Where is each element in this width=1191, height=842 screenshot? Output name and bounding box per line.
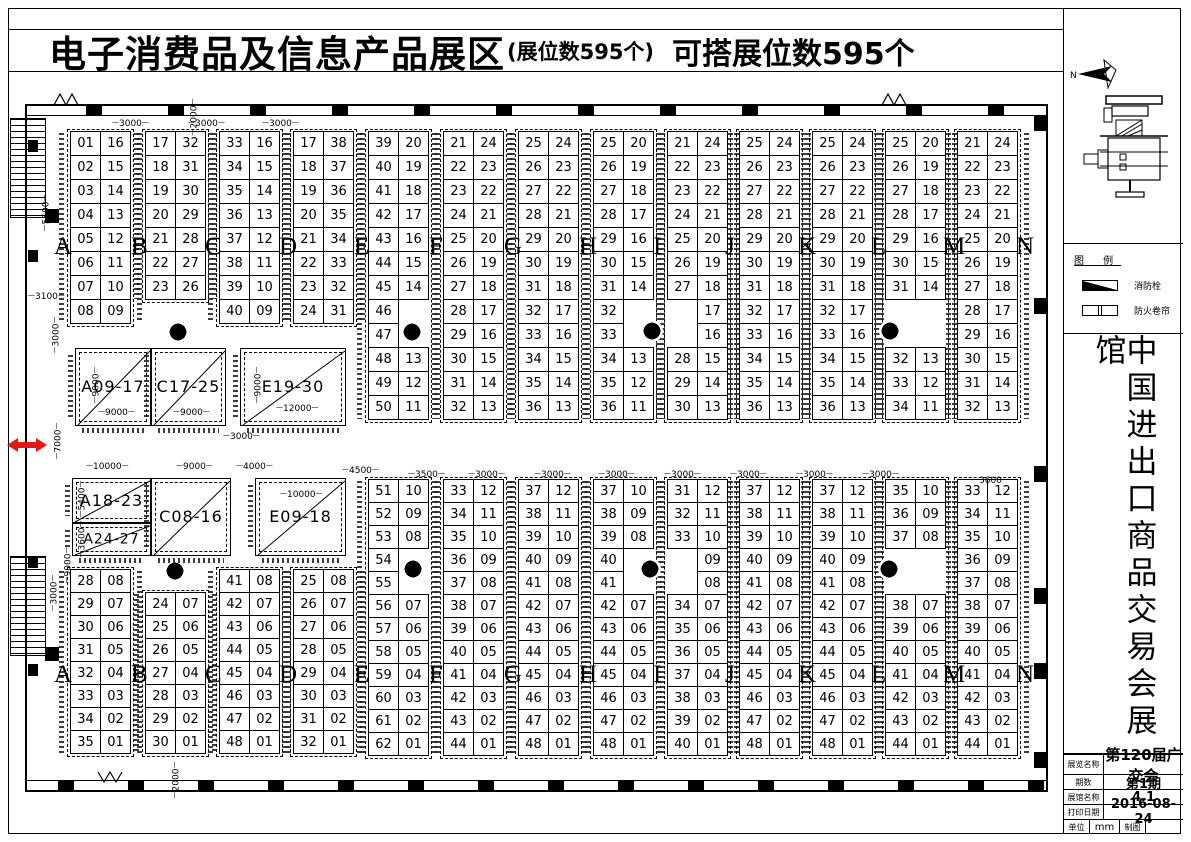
booth-row: 4401 (443, 733, 504, 756)
empty-cell (667, 323, 698, 348)
booth-cell: 04 (548, 663, 579, 687)
booth-cell: 28 (518, 203, 549, 228)
booth-row: 3114 (593, 276, 654, 300)
booth-row: 3611 (593, 396, 654, 420)
booth-row: 0512 (70, 228, 131, 252)
booth-row: 3807 (957, 595, 1018, 618)
booth-cell: 16 (548, 323, 579, 348)
booth-cell: 27 (145, 661, 176, 685)
booth-cell: 45 (368, 275, 399, 300)
wall-column (86, 105, 102, 116)
unit-label: 单位 (1064, 820, 1090, 834)
booth-cell: 31 (812, 275, 843, 300)
booth-cell: 20 (623, 131, 654, 156)
booth-cell: 18 (697, 275, 728, 300)
booth-block: 2124222323222421252026192718281729163015… (440, 129, 507, 423)
booth-row: 2407 (145, 593, 206, 616)
booth-cell: 34 (323, 227, 354, 252)
booth-cell: 26 (518, 155, 549, 180)
booth-cell: 04 (100, 661, 131, 685)
booth-row: 3902 (667, 710, 728, 733)
booth-row: 2907 (70, 593, 131, 616)
wall-column (824, 105, 840, 116)
booth-row: 2914 (667, 372, 728, 396)
dimension-label: 5500 (41, 195, 51, 232)
booth-cell: 31 (175, 155, 206, 180)
booth-cell: 23 (667, 179, 698, 204)
legend-item-fire-shutter: 防火卷帘 (1074, 304, 1173, 317)
booth-row: 3506 (667, 618, 728, 641)
booth-cell: 21 (697, 203, 728, 228)
booth-cell: 42 (219, 592, 250, 616)
legend: 图 例 消防栓 防火卷帘 (1064, 244, 1183, 334)
booth-cell: 22 (443, 155, 474, 180)
booth-row: 4912 (368, 372, 429, 396)
booth-row: 3407 (667, 595, 728, 618)
booth-cell: 48 (518, 732, 549, 756)
booth-cell: 26 (593, 155, 624, 180)
empty-cell (667, 548, 698, 572)
booth-cell: 29 (145, 707, 176, 731)
booth-cell: 19 (915, 155, 946, 180)
booth-cell: 08 (697, 571, 728, 595)
booth-row: 3613 (219, 204, 280, 228)
booth-cell: 07 (987, 594, 1018, 618)
wall-column (268, 781, 284, 792)
booth-cell: 39 (739, 525, 770, 549)
booth-row: 4504 (518, 664, 579, 687)
booth-row: 4306 (518, 618, 579, 641)
booth-row: 2124 (667, 132, 728, 156)
column-letter-bottom: F (429, 662, 443, 687)
booth-cell: 23 (473, 155, 504, 180)
booth-row: 1837 (293, 156, 354, 180)
column-letter-bottom: B (131, 662, 148, 687)
booth-group-label: C08-16 (152, 507, 230, 526)
booth-cell: 47 (812, 709, 843, 733)
booth-cell: 07 (70, 275, 101, 300)
booth-cell: 34 (667, 594, 698, 618)
booth-row: 2223 (443, 156, 504, 180)
dimension-label: 9000 (63, 547, 73, 584)
booth-cell: 35 (739, 371, 770, 396)
booth-cell: 23 (293, 275, 324, 300)
booth-row: 3803 (667, 687, 728, 710)
booth-row: 4009 (739, 549, 800, 572)
booth-row: 3013 (667, 396, 728, 420)
booth-row: 2920 (518, 228, 579, 252)
wall-column (28, 140, 38, 152)
booth-cell: 30 (175, 179, 206, 204)
booth-row: 17 (667, 300, 728, 324)
booth-cell: 21 (769, 203, 800, 228)
booth-cell: 39 (667, 709, 698, 733)
booth-row: 4005 (443, 641, 504, 664)
booth-block: 17381837193620352134223323322431 (290, 129, 357, 327)
booth-cell: 45 (518, 663, 549, 687)
booth-cell: 12 (473, 479, 504, 503)
booth-cell: 48 (368, 347, 399, 372)
booth-cell: 38 (593, 502, 624, 526)
booth-row: 4104 (957, 664, 1018, 687)
booth-row: 3811 (812, 503, 873, 526)
booth-cell: 06 (473, 617, 504, 641)
dimension-label: 4000 (236, 462, 273, 472)
booth-row: 3910 (739, 526, 800, 549)
booth-row: 2920 (812, 228, 873, 252)
booth-row: 3015 (443, 348, 504, 372)
booth-cell: 35 (667, 617, 698, 641)
booth-cell: 35 (812, 371, 843, 396)
booth-cell: 18 (398, 179, 429, 204)
wall-column (828, 781, 844, 792)
booth-row: 2326 (145, 276, 206, 300)
wall-column (1034, 466, 1046, 482)
booth-row: 2520 (443, 228, 504, 252)
column-letter-top: A (54, 234, 72, 259)
booth-cell: 19 (473, 251, 504, 276)
booth-cell: 40 (368, 155, 399, 180)
wall-column (28, 250, 38, 262)
booth-cell: 18 (987, 275, 1018, 300)
booth-cell: 27 (739, 179, 770, 204)
booth-row: 4603 (593, 687, 654, 710)
booth-row: 4306 (812, 618, 873, 641)
booth-row: 5805 (368, 641, 429, 664)
booth-row: 5308 (368, 526, 429, 549)
booth-cell: 28 (443, 299, 474, 324)
booth-cell: 27 (812, 179, 843, 204)
wall-column (742, 105, 758, 116)
booth-row: 2803 (145, 685, 206, 708)
booth-cell: 28 (593, 203, 624, 228)
booth-row: 2332 (293, 276, 354, 300)
booth-cell: 06 (697, 617, 728, 641)
booth-row: 2817 (443, 300, 504, 324)
booth-cell: 14 (915, 275, 946, 300)
booth-cell: 16 (473, 323, 504, 348)
booth-cell: 25 (667, 227, 698, 252)
booth-row: 3019 (812, 252, 873, 276)
booth-cell: 02 (323, 707, 354, 731)
booth-cell: 44 (739, 640, 770, 664)
booth-cell: 07 (249, 592, 280, 616)
booth-cell: 32 (812, 299, 843, 324)
booth-cell: 15 (548, 347, 579, 372)
booth-row: 3217 (518, 300, 579, 324)
booth-row: 3609 (885, 503, 946, 526)
column-letter-top: D (279, 234, 297, 259)
booth-row: 2520 (593, 132, 654, 156)
booth-row: 2916 (443, 324, 504, 348)
booth-cell: 06 (548, 617, 579, 641)
dimension-label: 3000 (862, 470, 899, 480)
booth-cell: 41 (812, 571, 843, 595)
booth-cell: 26 (812, 155, 843, 180)
booth-group-label: C17-25 (152, 377, 225, 396)
booth-cell: 08 (769, 571, 800, 595)
booth-row: 4401 (885, 733, 946, 756)
booth-cell: 48 (219, 730, 250, 754)
booth-row: 2623 (739, 156, 800, 180)
booth-cell: 47 (739, 709, 770, 733)
booth-cell: 43 (593, 617, 624, 641)
booth-cell: 06 (842, 617, 873, 641)
column-letter-bottom: L (871, 662, 886, 687)
booth-cell: 26 (739, 155, 770, 180)
booth-row: 4005 (957, 641, 1018, 664)
booth-row: 3201 (293, 731, 354, 754)
booth-cell: 47 (593, 709, 624, 733)
booth-cell: 42 (593, 594, 624, 618)
booth-cell: 04 (249, 661, 280, 685)
wall-column (168, 105, 184, 116)
booth-cell: 40 (812, 548, 843, 572)
booth-row: 3217 (739, 300, 800, 324)
booth-row: 3910 (812, 526, 873, 549)
booth-row: 3001 (145, 731, 206, 754)
booth-cell: 04 (70, 203, 101, 228)
booth-row: 3807 (885, 595, 946, 618)
booth-row: 4405 (518, 641, 579, 664)
booth-row: 4108 (812, 572, 873, 595)
booth-row: 5110 (368, 480, 429, 503)
booth-cell: 27 (175, 251, 206, 276)
booth-cell: 21 (293, 227, 324, 252)
booth-cell: 10 (769, 525, 800, 549)
booth-cell: 57 (368, 617, 399, 641)
booth-row: 2619 (443, 252, 504, 276)
booth-cell: 01 (100, 730, 131, 754)
booth-cell: 22 (548, 179, 579, 204)
booth-block: 3710380939084041420743064405450446034702… (590, 477, 657, 759)
booth-row: 4009 (518, 549, 579, 572)
booth-row: 0413 (70, 204, 131, 228)
booth-cell: 29 (175, 203, 206, 228)
booth-cell: 19 (842, 251, 873, 276)
booth-cell: 07 (915, 594, 946, 618)
booth-row: 3712 (518, 480, 579, 503)
legend-item-fire-hydrant: 消防栓 (1074, 279, 1173, 292)
booth-cell: 37 (518, 479, 549, 503)
booth-cell: 31 (739, 275, 770, 300)
booth-cell: 10 (100, 275, 131, 300)
booth-cell: 33 (70, 684, 101, 708)
dimension-label: 3000 (534, 470, 571, 480)
booth-row: 4019 (368, 156, 429, 180)
booth-row: 2718 (593, 180, 654, 204)
booth-cell: 29 (70, 592, 101, 616)
booth-row: 2605 (145, 639, 206, 662)
booth-cell: 03 (842, 686, 873, 710)
booth-cell: 13 (398, 347, 429, 372)
booth-cell: 20 (473, 227, 504, 252)
dimension-label: 3000 (664, 470, 701, 480)
booth-cell: 15 (473, 347, 504, 372)
booth-cell: 09 (697, 548, 728, 572)
booth-cell: 38 (443, 594, 474, 618)
booth-cell: 41 (368, 179, 399, 204)
booth-cell: 24 (957, 203, 988, 228)
booth-cell: 25 (443, 227, 474, 252)
booth-cell: 30 (443, 347, 474, 372)
booth-row: 2904 (293, 662, 354, 685)
booth-row: 2128 (145, 228, 206, 252)
booth-cell: 22 (145, 251, 176, 276)
booth-cell: 26 (667, 251, 698, 276)
booth-row: 4702 (739, 710, 800, 733)
booth-cell: 13 (915, 347, 946, 372)
booth-cell: 28 (739, 203, 770, 228)
booth-block: 3712381139104009410842074306440545044603… (809, 477, 876, 759)
booth-row: 2916 (593, 228, 654, 252)
column-letter-top: K (798, 234, 816, 259)
booth-cell: 43 (219, 615, 250, 639)
booth-row: 4405 (593, 641, 654, 664)
column-letter-bottom: M (943, 662, 965, 687)
booth-cell: 24 (548, 131, 579, 156)
north-arrow-icon: N (1064, 8, 1182, 242)
booth-cell: 40 (885, 640, 916, 664)
booth-cell: 32 (323, 275, 354, 300)
venue-name: 中国进出口商品交易会展馆 (1093, 334, 1155, 753)
booth-cell: 31 (885, 275, 916, 300)
booth-cell: 20 (915, 131, 946, 156)
booth-cell: 24 (667, 203, 698, 228)
booth-row: 3415 (219, 156, 280, 180)
booth-cell: 37 (219, 227, 250, 252)
booth-cell: 36 (812, 395, 843, 420)
booth-cell: 09 (987, 548, 1018, 572)
booth-cell: 06 (623, 617, 654, 641)
dimension-label: 3000 (262, 119, 299, 129)
booth-row: 3609 (957, 549, 1018, 572)
booth-cell: 01 (70, 131, 101, 156)
booth-cell: 06 (175, 615, 206, 639)
wall-column (250, 105, 266, 116)
booth-cell: 05 (323, 638, 354, 662)
booth-row: 3512 (593, 372, 654, 396)
booth-cell: 42 (957, 686, 988, 710)
fire-hydrant-icon (1082, 280, 1118, 291)
booth-cell: 39 (812, 525, 843, 549)
booth-cell: 19 (145, 179, 176, 204)
booth-row: 3015 (593, 252, 654, 276)
booth-cell: 37 (957, 571, 988, 595)
info-label: 展览名称 (1064, 755, 1104, 774)
booth-cell: 41 (219, 569, 250, 593)
booth-cell: 02 (249, 707, 280, 731)
booth-row: 2808 (70, 570, 131, 593)
booth-row: 2322 (957, 180, 1018, 204)
wall-column (1034, 663, 1046, 679)
booth-row: 3019 (518, 252, 579, 276)
booth-cell: 41 (739, 571, 770, 595)
booth-row: 2722 (812, 180, 873, 204)
booth-row: 3213 (885, 348, 946, 372)
wall-column (988, 105, 1004, 116)
booth-block: 2124222323222421252026192718281729163015… (954, 129, 1021, 423)
booth-cell: 32 (518, 299, 549, 324)
column-letter-bottom: E (354, 662, 369, 687)
booth-cell: 13 (100, 203, 131, 228)
booth-cell: 36 (667, 640, 698, 664)
booth-row: 2902 (145, 708, 206, 731)
booth-cell: 14 (548, 371, 579, 396)
booth-cell: 36 (518, 395, 549, 420)
booth-cell: 29 (885, 227, 916, 252)
booth-cell: 27 (957, 275, 988, 300)
booth-cell: 43 (518, 617, 549, 641)
booth-cell: 15 (249, 155, 280, 180)
booth-cell: 27 (885, 179, 916, 204)
booth-cell: 27 (293, 615, 324, 639)
booth-row: 3316 (739, 324, 800, 348)
booth-cell: 28 (70, 569, 101, 593)
booth-row: 4104 (885, 664, 946, 687)
booth-row: 2821 (739, 204, 800, 228)
booth-cell: 09 (473, 548, 504, 572)
booth-cell: 10 (987, 525, 1018, 549)
booth-cell: 30 (957, 347, 988, 372)
booth-cell: 44 (812, 640, 843, 664)
booth-cell: 34 (593, 347, 624, 372)
column-letter-bottom: H (579, 662, 597, 687)
booth-cell: 05 (915, 640, 946, 664)
booth-cell: 27 (667, 275, 698, 300)
pillar (167, 321, 189, 343)
booth-cell: 44 (518, 640, 549, 664)
booth-cell: 46 (219, 684, 250, 708)
booth-cell: 09 (842, 548, 873, 572)
booth-cell: 39 (885, 617, 916, 641)
booth-cell: 59 (368, 663, 399, 687)
booth-cell: 08 (548, 571, 579, 595)
booth-cell: 36 (885, 502, 916, 526)
hall-floor-plan: 0116021503140413051206110710080917321831… (0, 0, 1063, 842)
booth-row: 0215 (70, 156, 131, 180)
booth-cell: 20 (293, 203, 324, 228)
booth-cell: 61 (368, 709, 399, 733)
booth-cell: 24 (443, 203, 474, 228)
booth-cell: 12 (249, 227, 280, 252)
booth-cell: 01 (842, 732, 873, 756)
booth-row: 2619 (667, 252, 728, 276)
booth-cell: 33 (443, 479, 474, 503)
booth-cell: 28 (293, 638, 324, 662)
column-letter-top: F (429, 234, 443, 259)
booth-row: 3105 (70, 639, 131, 662)
column-letter-bottom: I (653, 662, 661, 687)
booth-row: 4207 (739, 595, 800, 618)
booth-cell: 38 (739, 502, 770, 526)
booth-cell: 21 (548, 203, 579, 228)
booth-row: 2227 (145, 252, 206, 276)
column-letter-bottom: D (279, 662, 297, 687)
booth-cell: 38 (219, 251, 250, 276)
booth-row: 4504 (812, 664, 873, 687)
column-letter-bottom: N (1016, 662, 1034, 687)
booth-cell: 25 (593, 131, 624, 156)
booth-cell: 03 (769, 686, 800, 710)
booth-cell: 11 (249, 251, 280, 276)
booth-row: 3303 (70, 685, 131, 708)
wall-column (338, 781, 354, 792)
booth-cell: 43 (957, 709, 988, 733)
booth-cell: 32 (957, 395, 988, 420)
booth-cell: 38 (885, 594, 916, 618)
booth-cell: 34 (957, 502, 988, 526)
